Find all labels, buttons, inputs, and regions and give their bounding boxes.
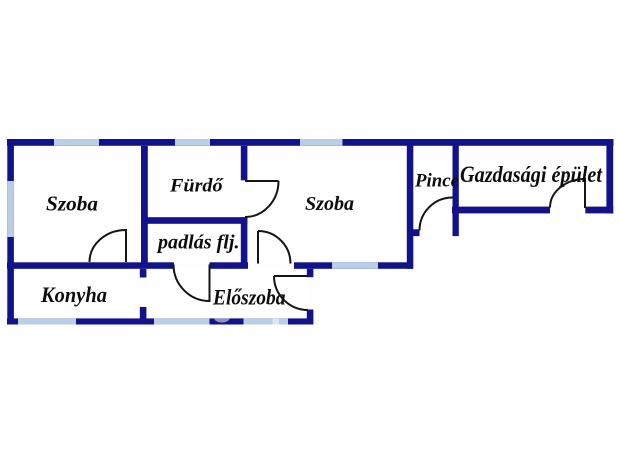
- svg-text:Pince: Pince: [414, 171, 460, 192]
- svg-text:Fürdő: Fürdő: [169, 177, 224, 197]
- svg-text:padlás flj.: padlás flj.: [156, 233, 240, 254]
- svg-text:Gazdasági épület: Gazdasági épület: [460, 162, 603, 187]
- svg-text:Előszoba: Előszoba: [212, 285, 285, 310]
- svg-text:Szoba: Szoba: [46, 192, 98, 216]
- svg-text:Szoba: Szoba: [305, 193, 354, 215]
- svg-text:Konyha: Konyha: [40, 282, 107, 307]
